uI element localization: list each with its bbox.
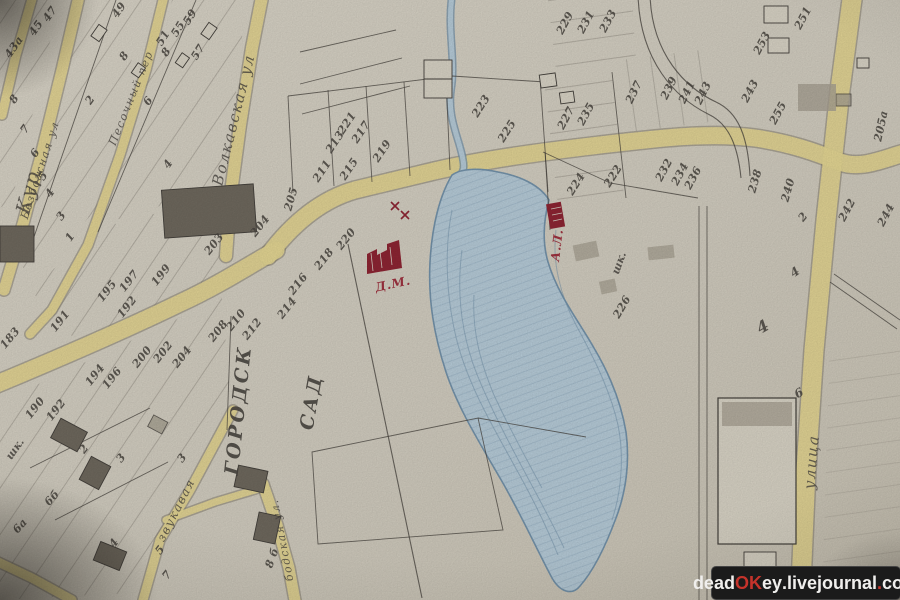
- watermark-text: com: [882, 573, 900, 594]
- base-map-svg: [0, 0, 900, 600]
- watermark-text: livejournal: [787, 573, 877, 594]
- watermark-text: ey: [762, 573, 782, 594]
- watermark-text: dead: [693, 573, 735, 594]
- watermark: deadOKey.livejournal.com: [711, 566, 900, 600]
- old-map-photo: 474543а495955515788642876543118319119519…: [0, 0, 900, 600]
- watermark-text-red: OK: [735, 573, 762, 594]
- photo-grain: [0, 0, 900, 600]
